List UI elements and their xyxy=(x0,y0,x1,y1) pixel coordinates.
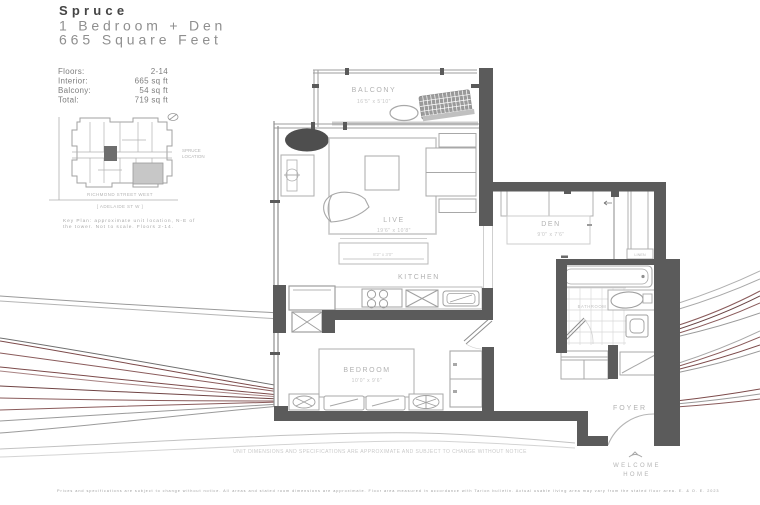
svg-text:BEDROOM: BEDROOM xyxy=(343,367,390,374)
svg-text:BATHROOM: BATHROOM xyxy=(578,304,607,309)
svg-text:Balcony:: Balcony: xyxy=(58,86,91,95)
svg-text:8'2" x 3'0": 8'2" x 3'0" xyxy=(373,252,393,257)
svg-text:UNIT DIMENSIONS AND SPECIFICAT: UNIT DIMENSIONS AND SPECIFICATIONS ARE A… xyxy=(233,449,527,455)
svg-text:665 Square Feet: 665 Square Feet xyxy=(59,32,222,48)
svg-text:Key Plan: approximate unit loc: Key Plan: approximate unit location, N-E… xyxy=(63,218,195,224)
svg-text:Floors:: Floors: xyxy=(58,67,85,76)
svg-text:HOME: HOME xyxy=(623,472,651,478)
svg-text:KITCHEN: KITCHEN xyxy=(398,274,440,281)
svg-text:DEN: DEN xyxy=(541,221,561,228)
svg-text:719 sq ft: 719 sq ft xyxy=(135,96,169,105)
svg-text:LIVE: LIVE xyxy=(383,217,405,224)
svg-text:Spruce: Spruce xyxy=(59,3,128,18)
svg-text:2-14: 2-14 xyxy=(151,67,168,76)
svg-text:WELCOME: WELCOME xyxy=(613,463,661,469)
svg-text:RICHMOND STREET WEST: RICHMOND STREET WEST xyxy=(87,192,153,197)
svg-text:665 sq ft: 665 sq ft xyxy=(135,77,169,86)
svg-text:BALCONY: BALCONY xyxy=(352,87,397,94)
svg-text:FOYER: FOYER xyxy=(613,405,647,412)
svg-text:19'6" x 10'8": 19'6" x 10'8" xyxy=(377,228,411,234)
svg-text:the tower. Not to scale. Floor: the tower. Not to scale. Floors 2-14. xyxy=(63,224,174,230)
svg-text:16'5" x 5'10": 16'5" x 5'10" xyxy=(357,99,391,105)
svg-text:LOCATION: LOCATION xyxy=(182,154,205,159)
svg-text:LINEN: LINEN xyxy=(634,253,645,257)
svg-text:9'0" x 7'6": 9'0" x 7'6" xyxy=(537,232,564,238)
svg-text:Interior:: Interior: xyxy=(58,77,88,86)
svg-text:54 sq ft: 54 sq ft xyxy=(139,86,168,95)
svg-text:Total:: Total: xyxy=(58,96,79,105)
svg-text:[ ADELAIDE ST W ]: [ ADELAIDE ST W ] xyxy=(97,204,143,209)
svg-text:Prices and specifications are: Prices and specifications are subject to… xyxy=(57,489,720,493)
svg-text:10'0" x 9'6": 10'0" x 9'6" xyxy=(352,378,383,384)
svg-text:SPRUCE: SPRUCE xyxy=(182,148,201,153)
